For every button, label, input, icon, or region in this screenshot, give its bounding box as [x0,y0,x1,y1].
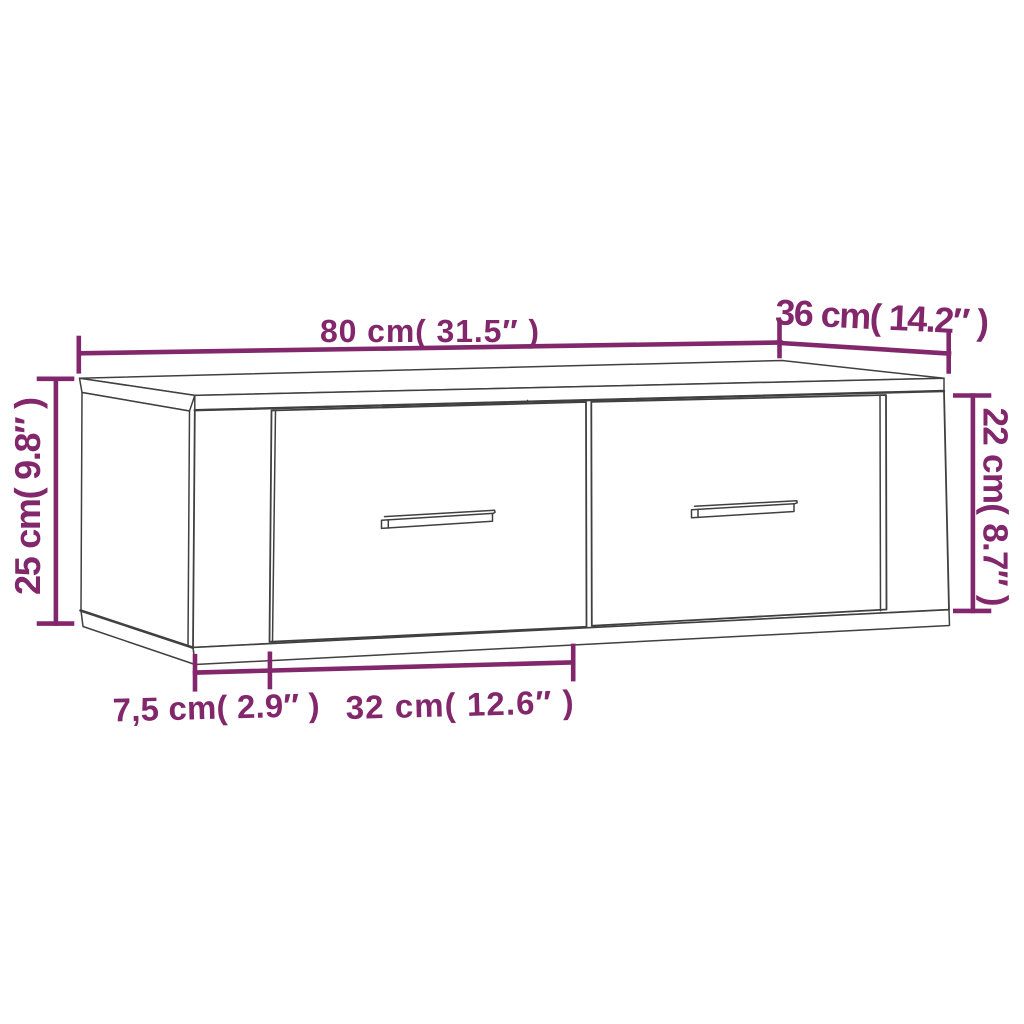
svg-text:25 cm( 9.8″ ): 25 cm( 9.8″ ) [7,397,48,595]
svg-text:22 cm( 8.7″ ): 22 cm( 8.7″ ) [975,408,1014,607]
svg-text:7,5 cm( 2.9″ ): 7,5 cm( 2.9″ ) [112,686,320,728]
svg-text:80 cm( 31.5″ ): 80 cm( 31.5″ ) [320,313,539,349]
svg-text:32 cm( 12.6″ ): 32 cm( 12.6″ ) [345,683,574,726]
